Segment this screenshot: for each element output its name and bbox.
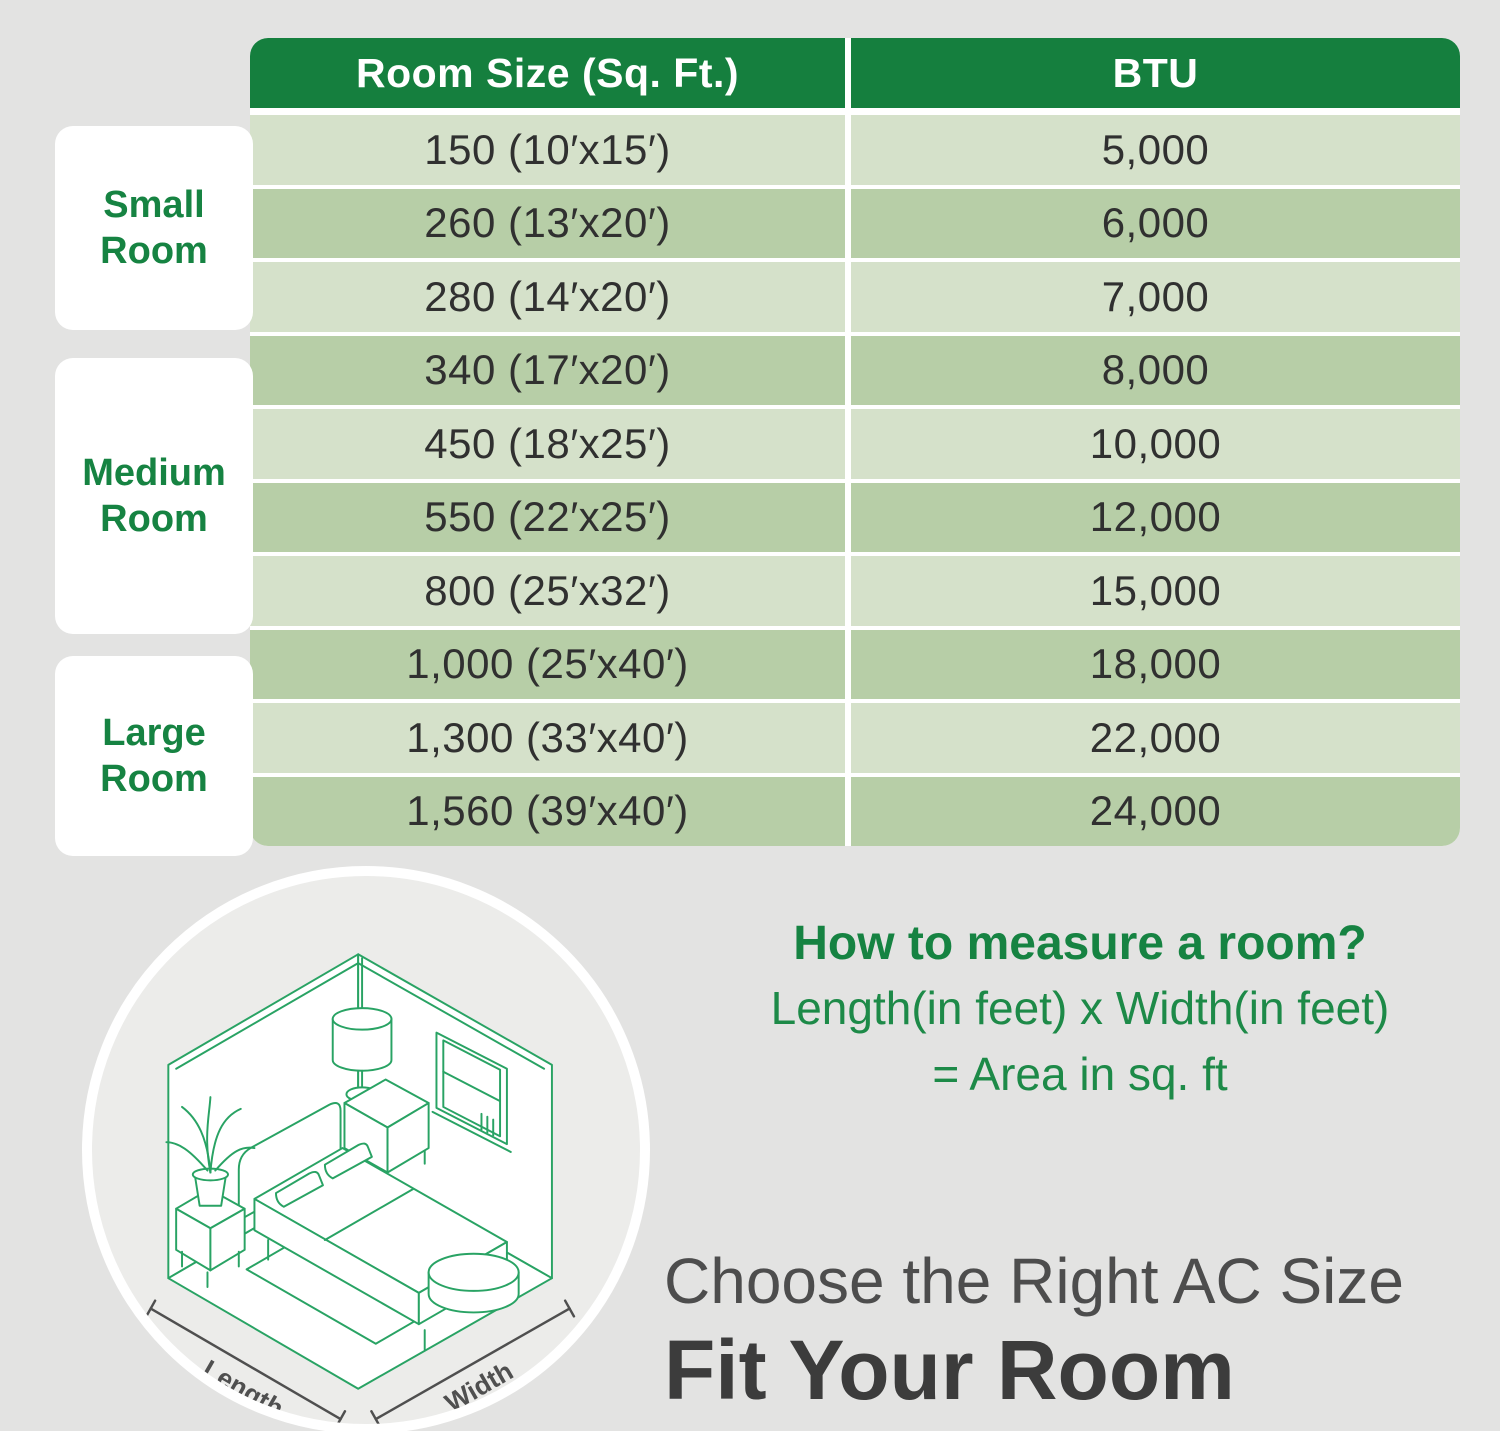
table-header-row: Room Size (Sq. Ft.) BTU xyxy=(250,38,1460,108)
btu-value: 6,000 xyxy=(851,189,1460,259)
room-size-value: 340 (17′x20′) xyxy=(250,336,845,406)
category-label: Medium xyxy=(82,450,226,496)
room-size-value: 1,000 (25′x40′) xyxy=(250,630,845,700)
table-row: 1,560 (39′x40′) 24,000 xyxy=(250,777,1460,847)
btu-value: 5,000 xyxy=(851,115,1460,185)
table-row: 800 (25′x32′) 15,000 xyxy=(250,556,1460,626)
table-row: 1,000 (25′x40′) 18,000 xyxy=(250,630,1460,700)
btu-value: 18,000 xyxy=(851,630,1460,700)
table-row: 550 (22′x25′) 12,000 xyxy=(250,483,1460,553)
width-label: Width xyxy=(440,1356,518,1419)
footer-titles: Choose the Right AC Size Fit Your Room xyxy=(664,1243,1484,1419)
category-label: Small xyxy=(103,182,204,228)
table-row: 450 (18′x25′) 10,000 xyxy=(250,409,1460,479)
length-label: Length xyxy=(198,1354,289,1424)
measure-instructions: How to measure a room? Length(in feet) x… xyxy=(655,913,1500,1107)
btu-value: 7,000 xyxy=(851,262,1460,332)
room-size-value: 1,300 (33′x40′) xyxy=(250,703,845,773)
category-label: Large xyxy=(102,710,205,756)
room-measure-illustration: Length Width xyxy=(82,866,650,1431)
header-room-size: Room Size (Sq. Ft.) xyxy=(250,38,845,108)
btu-value: 24,000 xyxy=(851,777,1460,847)
room-size-value: 150 (10′x15′) xyxy=(250,115,845,185)
footer-subtitle: Choose the Right AC Size xyxy=(664,1243,1484,1319)
table-row: 340 (17′x20′) 8,000 xyxy=(250,336,1460,406)
btu-value: 15,000 xyxy=(851,556,1460,626)
isometric-bedroom-drawing: Length Width xyxy=(92,876,640,1424)
btu-sizing-table: Room Size (Sq. Ft.) BTU 150 (10′x15′) 5,… xyxy=(250,38,1460,846)
infographic-page: { "table": { "headers": { "col1": "Room … xyxy=(0,0,1500,1431)
room-size-value: 800 (25′x32′) xyxy=(250,556,845,626)
room-size-value: 450 (18′x25′) xyxy=(250,409,845,479)
measure-title: How to measure a room? xyxy=(655,913,1500,975)
btu-value: 10,000 xyxy=(851,409,1460,479)
btu-value: 8,000 xyxy=(851,336,1460,406)
room-size-value: 550 (22′x25′) xyxy=(250,483,845,553)
table-row: 1,300 (33′x40′) 22,000 xyxy=(250,703,1460,773)
room-size-value: 280 (14′x20′) xyxy=(250,262,845,332)
footer-title: Fit Your Room xyxy=(664,1321,1484,1419)
table-row: 280 (14′x20′) 7,000 xyxy=(250,262,1460,332)
ottoman xyxy=(429,1254,519,1313)
room-size-value: 1,560 (39′x40′) xyxy=(250,777,845,847)
btu-value: 12,000 xyxy=(851,483,1460,553)
measure-formula-line1: Length(in feet) x Width(in feet) xyxy=(655,975,1500,1041)
table-column-divider xyxy=(845,38,851,846)
table-row: 150 (10′x15′) 5,000 xyxy=(250,115,1460,185)
category-label: Room xyxy=(100,228,208,274)
header-btu: BTU xyxy=(851,38,1460,108)
table-row: 260 (13′x20′) 6,000 xyxy=(250,189,1460,259)
room-size-value: 260 (13′x20′) xyxy=(250,189,845,259)
category-label: Room xyxy=(100,496,208,542)
category-medium-room: Medium Room xyxy=(55,358,253,634)
category-label: Room xyxy=(100,756,208,802)
category-small-room: Small Room xyxy=(55,126,253,330)
btu-value: 22,000 xyxy=(851,703,1460,773)
measure-formula-line2: = Area in sq. ft xyxy=(655,1041,1500,1107)
category-large-room: Large Room xyxy=(55,656,253,856)
